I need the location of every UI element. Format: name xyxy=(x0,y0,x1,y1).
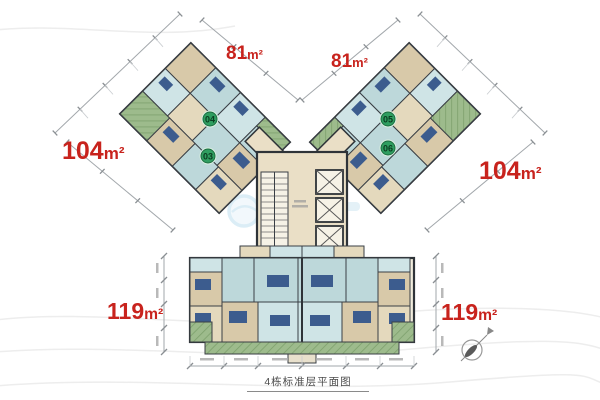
unit-badge-06: 06 xyxy=(380,140,397,157)
floor-plan-image: 81m² 81m² 104m² 104m² 119m² 119m² 04 03 … xyxy=(0,0,600,400)
plan-caption: 4栋标准层平面图 xyxy=(247,374,369,392)
unit-badge-03: 03 xyxy=(200,148,217,165)
area-label-119-left: 119m² xyxy=(107,300,163,323)
area-label-81-right: 81m² xyxy=(331,52,368,71)
area-label-81-left: 81m² xyxy=(226,44,263,63)
area-label-104-left: 104m² xyxy=(62,139,125,164)
stairs xyxy=(261,172,288,246)
bottom-units-119 xyxy=(190,246,414,363)
unit-badge-05: 05 xyxy=(380,111,397,128)
area-label-104-right: 104m² xyxy=(479,159,542,184)
area-label-119-right: 119m² xyxy=(441,301,497,324)
unit-badge-04: 04 xyxy=(202,111,219,128)
floor-plan-drawing xyxy=(0,0,600,400)
elevator-core xyxy=(257,152,347,260)
elevator-shafts xyxy=(316,170,343,250)
